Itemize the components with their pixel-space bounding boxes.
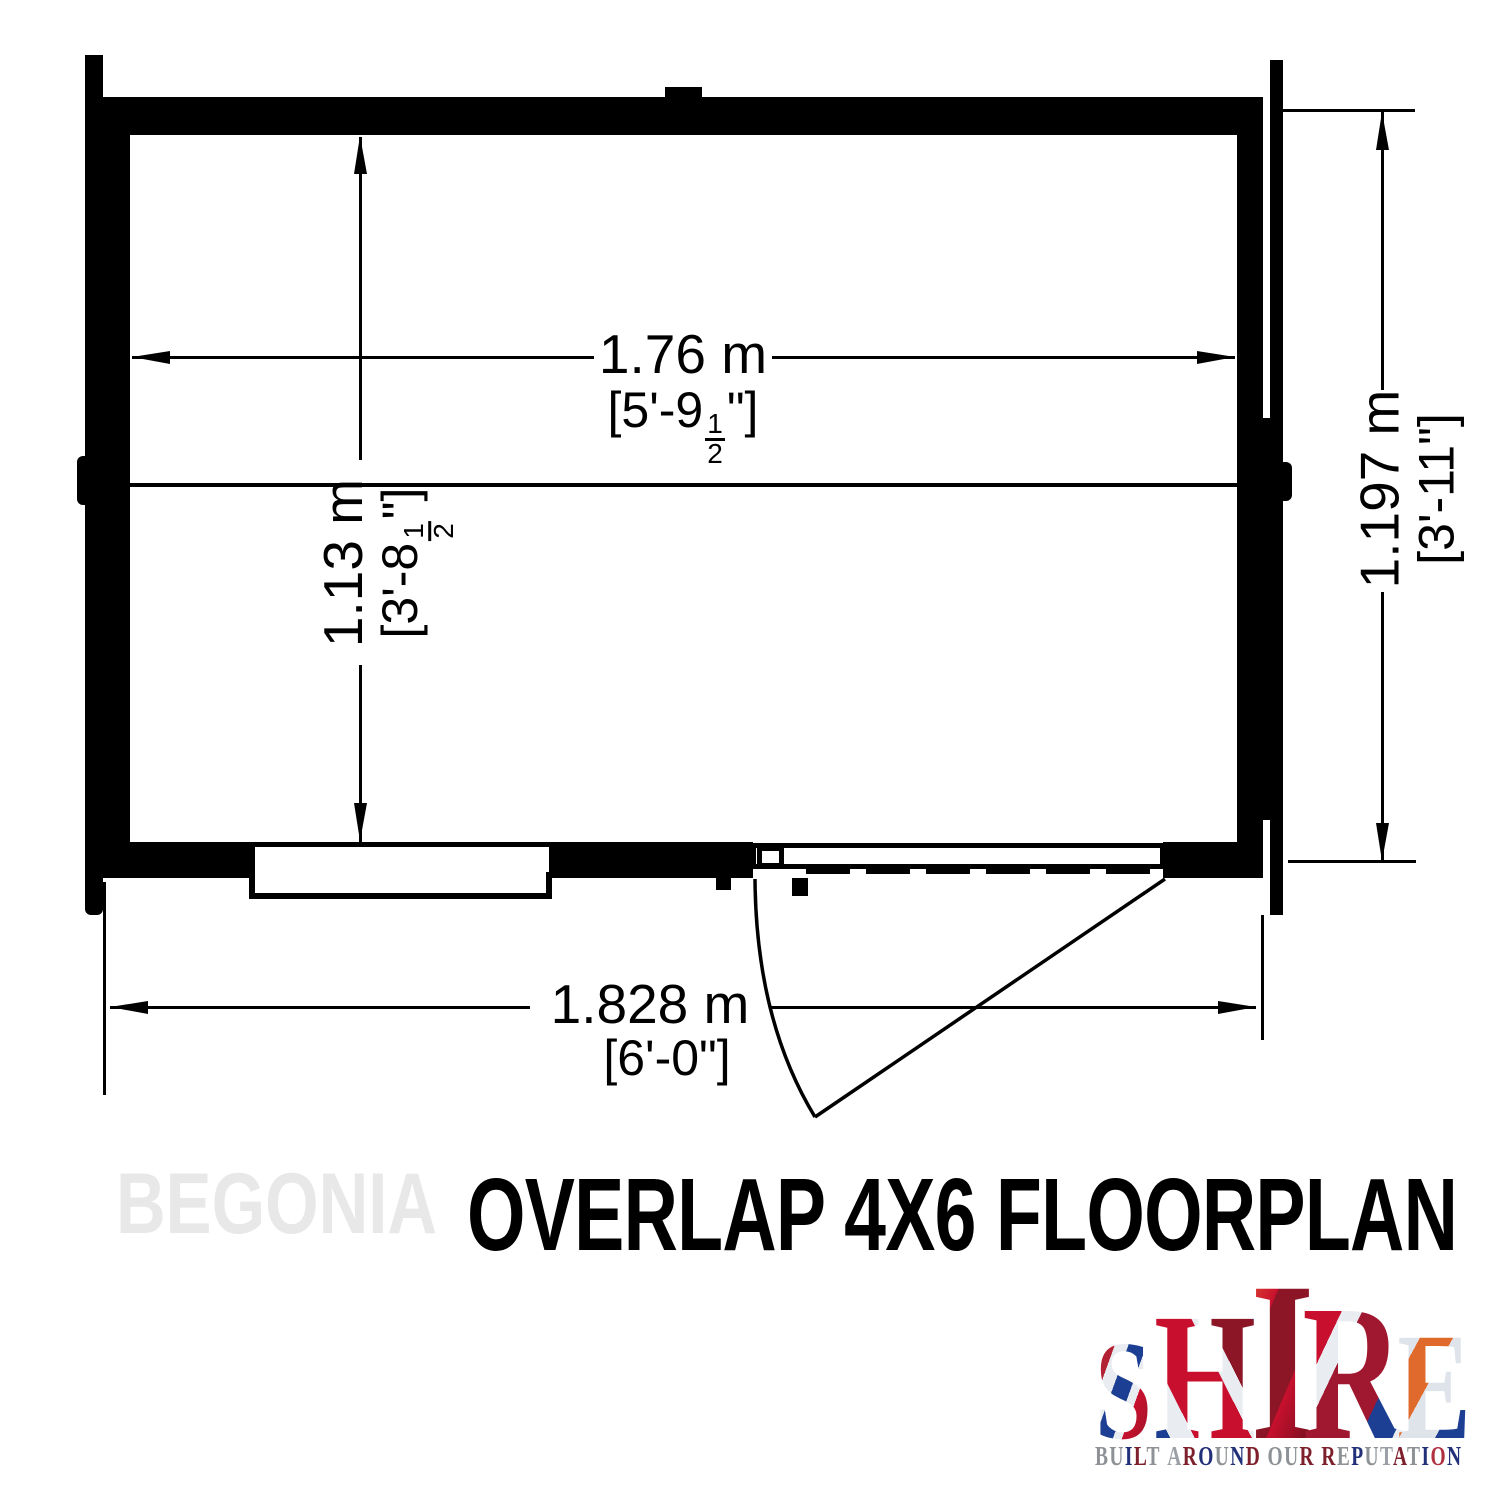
tagline-letter: R	[1300, 1441, 1315, 1471]
tagline-letter: U	[1109, 1441, 1124, 1471]
floorplan-page: 1.76 m [5'-912"] 1.13 m [3'-812"] 1.197 …	[0, 0, 1500, 1500]
tagline-letter: N	[1230, 1441, 1245, 1471]
tagline-letter: I	[1421, 1441, 1430, 1471]
tagline-letter: T	[1147, 1441, 1161, 1471]
tagline-letter: T	[1407, 1441, 1421, 1471]
tagline-letter: I	[1125, 1441, 1134, 1471]
tagline-letter: N	[1447, 1441, 1462, 1471]
tagline-letter: U	[1284, 1441, 1299, 1471]
tagline-letter: E	[1337, 1441, 1351, 1471]
tagline-letter: D	[1246, 1441, 1261, 1471]
tagline-letter: T	[1380, 1441, 1393, 1471]
tagline-letter: A	[1393, 1441, 1407, 1471]
shire-logo: S H I R E	[0, 0, 1500, 1500]
logo-tagline: BUILT AROUND OUR REPUTATION	[1095, 1441, 1463, 1472]
tagline-letter: O	[1198, 1441, 1215, 1471]
tagline-letter: P	[1351, 1441, 1364, 1471]
tagline-letter: O	[1268, 1441, 1285, 1471]
tagline-letter: R	[1321, 1441, 1336, 1471]
tagline-letter: R	[1183, 1441, 1198, 1471]
tagline-letter: U	[1365, 1441, 1380, 1471]
tagline-letter: B	[1095, 1441, 1109, 1471]
tagline-letter: A	[1167, 1441, 1182, 1471]
tagline-letter: O	[1430, 1441, 1447, 1471]
tagline-letter: U	[1215, 1441, 1230, 1471]
tagline-letter: L	[1134, 1441, 1147, 1471]
